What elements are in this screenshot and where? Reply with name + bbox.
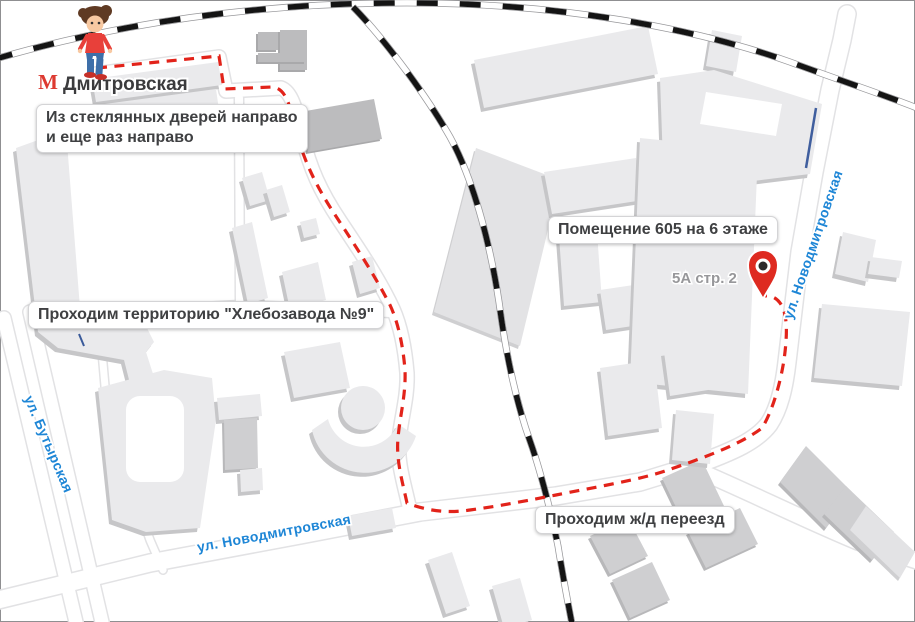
dark-block-top — [258, 30, 307, 70]
callout-destination: Помещение 605 на 6 этаже — [548, 216, 778, 244]
callout-exit-line1: Из стеклянных дверей направо — [46, 108, 298, 128]
metro-m-icon-letter: М — [38, 70, 58, 94]
route-map: ул. Бутырская ул. Новодмитровская ул. Но… — [0, 0, 915, 622]
callout-exit-directions: Из стеклянных дверей направо и еще раз н… — [36, 104, 308, 153]
callout-territory: Проходим территорию "Хлебозавода №9" — [28, 301, 384, 329]
destination-pin — [748, 250, 778, 299]
callout-exit-line2: и еще раз направо — [46, 128, 298, 148]
callout-crossing: Проходим ж/д переезд — [535, 506, 735, 534]
building-5a-label: 5А стр. 2 — [672, 270, 737, 287]
station-name-label: Дмитровская — [63, 74, 188, 95]
